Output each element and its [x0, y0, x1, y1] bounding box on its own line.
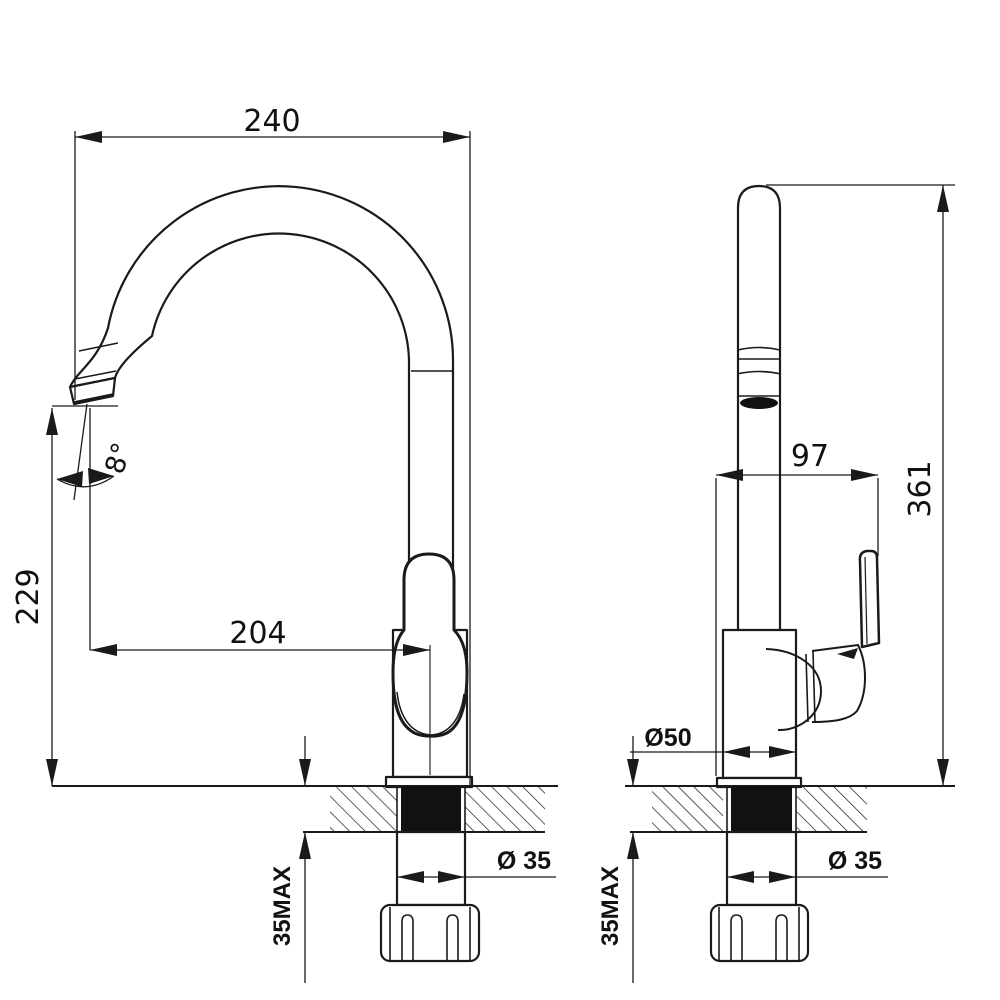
dim-overall-width-label: 240: [243, 104, 300, 139]
technical-drawing-page: 240 229 8° 204: [0, 0, 1000, 1000]
mounting-shank-front: [397, 786, 465, 905]
dimensions: 240 229 8° 204: [11, 104, 955, 983]
mounting-nut-front: [381, 905, 479, 961]
dim-overall-height-label: 361: [903, 460, 938, 517]
mounting-shank-side: [727, 786, 796, 905]
mounting-nut-side: [711, 905, 808, 961]
dim-deck-max-front-label: 35MAX: [269, 866, 296, 946]
dim-outlet-angle: 8°: [57, 404, 138, 650]
side-view: [625, 186, 955, 961]
dim-outlet-angle-label: 8°: [99, 439, 138, 478]
dim-deck-max-front: 35MAX: [269, 736, 311, 983]
countertop-front: [52, 786, 558, 832]
dim-deck-max-side-label: 35MAX: [597, 866, 624, 946]
dim-spout-reach: 204: [90, 616, 430, 656]
dim-depth-label: 97: [791, 439, 829, 474]
dim-base-dia-label: Ø50: [644, 724, 691, 752]
faucet-technical-drawing: 240 229 8° 204: [0, 0, 1000, 1000]
dim-spout-height-label: 229: [11, 568, 46, 625]
handle-lever-side: [860, 551, 879, 647]
handle-collar-side: [806, 645, 865, 722]
dim-spout-reach-label: 204: [229, 616, 286, 651]
dim-hole-dia-side-label: Ø 35: [828, 847, 882, 875]
dim-deck-max-side: 35MAX: [597, 736, 639, 983]
dim-hole-dia-front-label: Ø 35: [497, 847, 551, 875]
spout-outline: [70, 186, 453, 634]
